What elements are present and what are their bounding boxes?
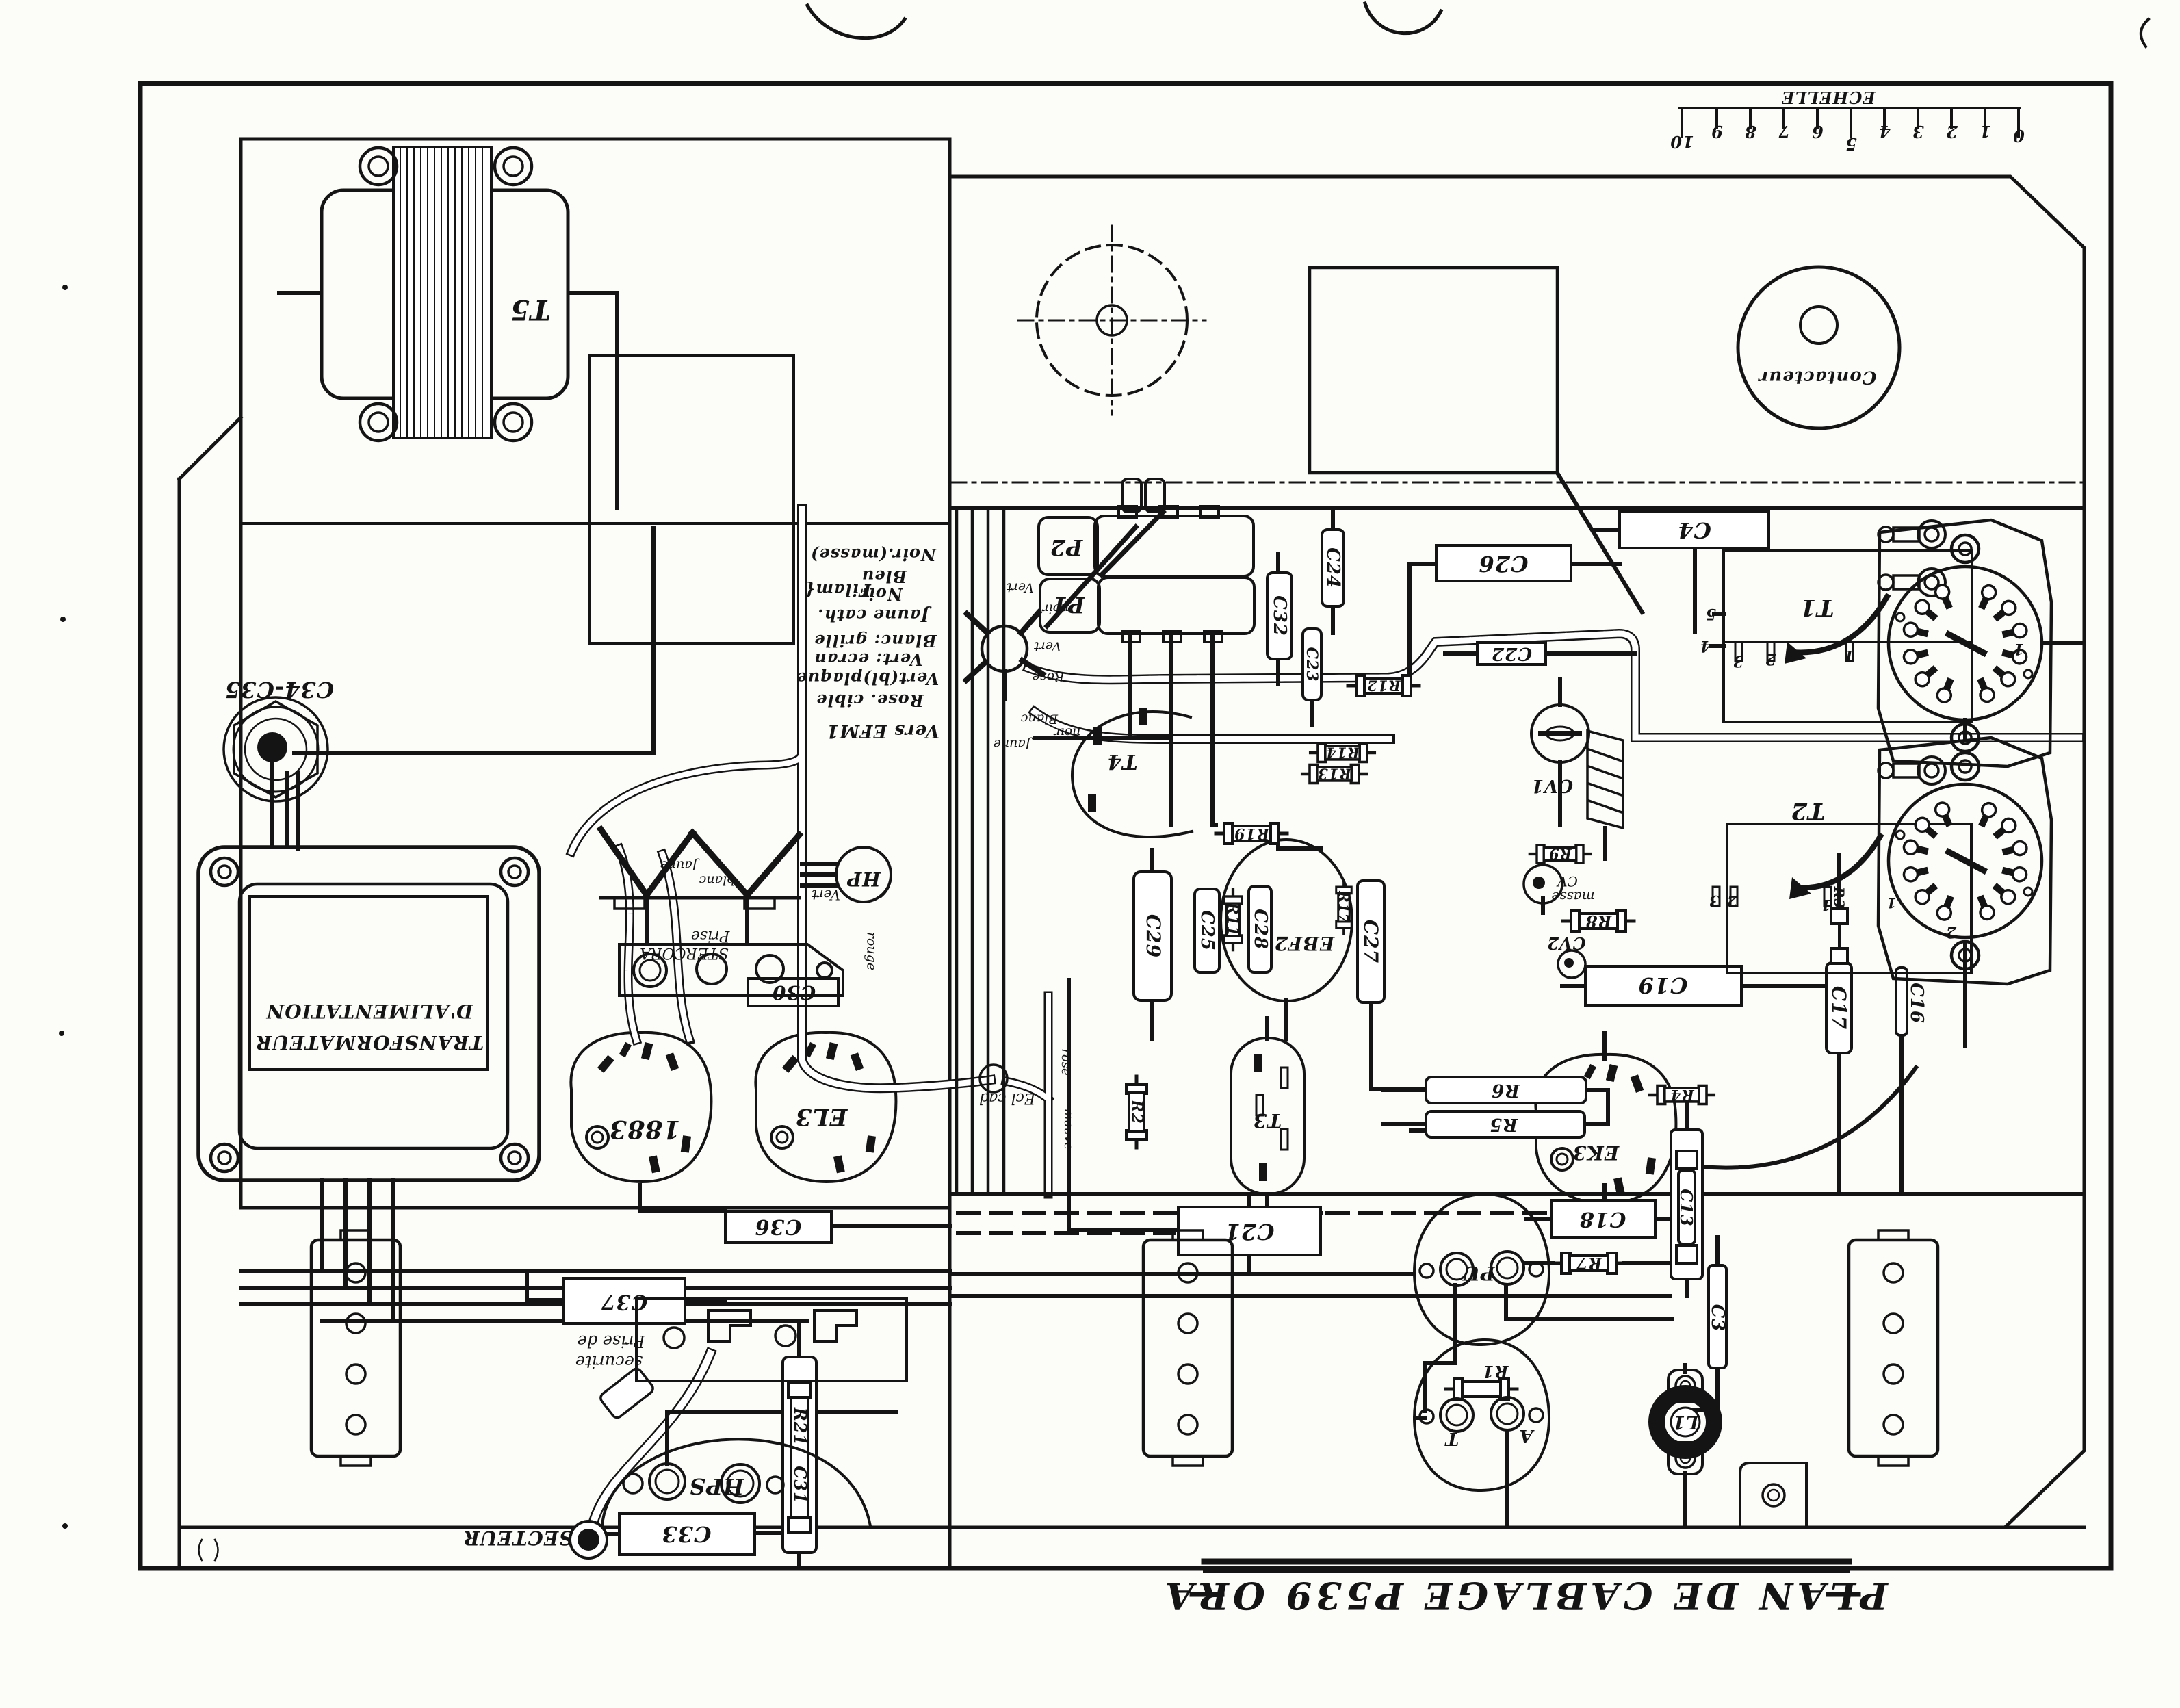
label-ecl: Ecl cad <box>979 1090 1035 1105</box>
terminal-strip-left <box>311 1230 400 1466</box>
label-c32: C32 <box>1271 595 1288 636</box>
label-c25: C25 <box>1198 910 1216 951</box>
label-t2: T2 <box>1791 799 1826 823</box>
label-r11: R11 <box>1226 903 1241 937</box>
label-hp: HP <box>846 869 881 888</box>
scanned-wiring-plan-page: PLAN DE CABLAGE P539 ORAECHELLE012345678… <box>0 0 2180 1708</box>
wiring-diagram <box>0 0 2180 1708</box>
label-s5: 5 <box>1845 135 1857 152</box>
label-mauve1: mauve <box>1062 1109 1074 1150</box>
label-pst1: Prise <box>691 928 730 943</box>
label-c4: C4 <box>1677 519 1711 541</box>
label-w2: 1 <box>1886 896 1897 910</box>
label-psec2: securite <box>575 1354 643 1370</box>
label-tr2: TRANSFORMATEUR <box>255 1033 484 1052</box>
label-vert_b: Vert <box>1034 640 1061 653</box>
label-leg_vert2: Vert: ecran <box>814 651 922 667</box>
label-r12: R12 <box>1366 679 1401 693</box>
trimmer-cv1 <box>1531 705 1589 762</box>
page-frame <box>59 3 2149 1568</box>
fold-line <box>951 226 2083 482</box>
label-c27: C27 <box>1361 920 1380 963</box>
label-s0: 0 <box>2012 127 2025 144</box>
label-q2: 2 <box>1726 893 1737 908</box>
label-c28: C28 <box>1251 909 1269 950</box>
trimmer-cv2 <box>1558 950 1585 978</box>
label-t5: T5 <box>510 296 551 323</box>
dial-opening <box>1310 268 1557 473</box>
label-c37: C37 <box>601 1291 648 1312</box>
label-s4: 4 <box>1878 123 1891 140</box>
coil-hatched <box>1587 731 1623 828</box>
label-r7: R7 <box>1576 1255 1602 1271</box>
label-c3: C3 <box>1709 1304 1726 1332</box>
solder-lug-arrows <box>601 829 799 909</box>
label-r9: R9 <box>1548 847 1572 862</box>
label-cvm2: masse <box>1551 890 1594 904</box>
label-p2: P2 <box>1050 536 1082 558</box>
label-vert_hp: Vert <box>812 888 840 902</box>
label-r19: R19 <box>1234 826 1269 841</box>
label-s9: 9 <box>1711 123 1723 140</box>
label-s2: 2 <box>1945 123 1958 140</box>
label-c13: C13 <box>1678 1189 1694 1227</box>
label-r3: R3 <box>1832 887 1846 909</box>
label-q2b: 2 <box>1945 924 1956 940</box>
label-secteur: SECTEUR <box>463 1528 573 1547</box>
label-c34: C34-C35 <box>224 679 334 701</box>
label-leg_vers: Vers EFM1 <box>826 722 939 740</box>
label-l1: L1 <box>1672 1413 1698 1431</box>
label-r4: R4 <box>1670 1087 1694 1102</box>
tube-socket-1883 <box>571 1033 711 1182</box>
label-p3n: 3 <box>1733 654 1743 669</box>
label-contacteur: Contacteur <box>1759 368 1877 386</box>
label-c17: C17 <box>1829 986 1848 1030</box>
label-w1: 1 <box>2013 641 2024 656</box>
label-s8: 8 <box>1744 123 1756 140</box>
label-s10: 10 <box>1670 133 1694 150</box>
label-r2: R2 <box>1129 1100 1144 1124</box>
label-s6: 6 <box>1811 123 1824 140</box>
label-tl: T <box>1445 1429 1459 1447</box>
label-c31: C31 <box>792 1466 808 1504</box>
label-v1883: 1883 <box>609 1117 680 1141</box>
label-hps: HPS <box>689 1475 744 1497</box>
terminal-strip-right <box>1849 1230 1938 1466</box>
label-blanc1: blanc <box>699 874 735 887</box>
label-c36: C36 <box>755 1216 802 1237</box>
label-c18: C18 <box>1579 1208 1626 1229</box>
label-noir_b: noir <box>1054 726 1081 739</box>
label-leg_rose: Rose. cible <box>816 692 923 708</box>
label-s3: 3 <box>1912 123 1924 140</box>
label-tr1: D'ALIMENTATION <box>266 1001 473 1020</box>
scale-ruler <box>1680 108 2020 137</box>
label-c24: C24 <box>1324 547 1342 588</box>
terminal-strip-middle <box>1143 1230 1232 1466</box>
label-r14: R14 <box>1325 746 1360 760</box>
label-q3: 3 <box>1709 893 1720 908</box>
label-el3: EL3 <box>795 1105 847 1128</box>
label-r17: R17 <box>1337 891 1351 923</box>
label-leg_masse: Noir.(masse) <box>810 546 936 562</box>
label-ek3: EK3 <box>1572 1143 1619 1162</box>
label-c30: C30 <box>772 983 816 1002</box>
corner-bracket <box>1740 1463 1806 1527</box>
contacteur-hole <box>1738 267 1899 428</box>
label-c19: C19 <box>1638 974 1688 996</box>
label-cv2: CV2 <box>1546 935 1585 951</box>
label-t3: T3 <box>1253 1111 1282 1130</box>
label-p1: P1 <box>1052 594 1085 616</box>
label-blanc_a: Blanc <box>1021 712 1058 725</box>
label-pst2: STERCORA <box>640 945 729 960</box>
label-c22: C22 <box>1491 645 1532 662</box>
label-vert_a: Vert <box>1007 581 1034 594</box>
label-p2n: 2 <box>1765 651 1776 667</box>
label-rouge1: rouge <box>865 932 878 970</box>
label-t1: T1 <box>1800 596 1834 619</box>
label-s7: 7 <box>1778 123 1790 140</box>
label-leg_filam: Filam{ <box>804 582 871 598</box>
label-pu: PU <box>1462 1263 1494 1282</box>
label-cvm1: CV <box>1557 875 1578 888</box>
label-echelle: ECHELLE <box>1781 89 1875 105</box>
label-cv1: CV1 <box>1531 777 1573 794</box>
label-c29: C29 <box>1143 914 1163 958</box>
label-ebf2: EBF2 <box>1274 933 1334 953</box>
label-r8: R8 <box>1585 913 1612 929</box>
label-r21: R21 <box>792 1408 808 1446</box>
label-c26: C26 <box>1479 553 1529 575</box>
label-rose2: rose <box>1059 1048 1072 1075</box>
label-c33: C33 <box>662 1523 712 1545</box>
label-jaune1: Jaune <box>660 859 698 872</box>
label-jaune_a: Jaune <box>994 738 1031 751</box>
label-p1n: 1 <box>1843 648 1854 663</box>
label-c23: C23 <box>1304 647 1319 682</box>
label-r1: R1 <box>1482 1363 1509 1380</box>
label-psec1: Prise de <box>577 1333 645 1349</box>
label-title: PLAN DE CABLAGE P539 ORA <box>1161 1577 1888 1614</box>
label-q1: 1 <box>1820 897 1831 912</box>
label-t4: T4 <box>1106 751 1137 771</box>
label-c16: C16 <box>1908 983 1925 1024</box>
label-al: A <box>1518 1427 1533 1445</box>
label-leg_vertbl: Vert(bl)plaque <box>796 670 939 686</box>
label-r5: R5 <box>1489 1115 1518 1133</box>
label-p5n: 5 <box>1705 606 1716 621</box>
label-leg_blanc: Blanc: grille <box>814 632 936 649</box>
label-rose_a: Rose <box>1033 671 1065 684</box>
label-p4n: 4 <box>1700 638 1711 654</box>
label-leg_jaune: Jaune cath. <box>817 607 929 623</box>
label-r6: R6 <box>1491 1081 1520 1099</box>
label-c21: C21 <box>1225 1221 1275 1243</box>
label-r13: R13 <box>1317 767 1351 781</box>
label-s1: 1 <box>1979 123 1991 140</box>
